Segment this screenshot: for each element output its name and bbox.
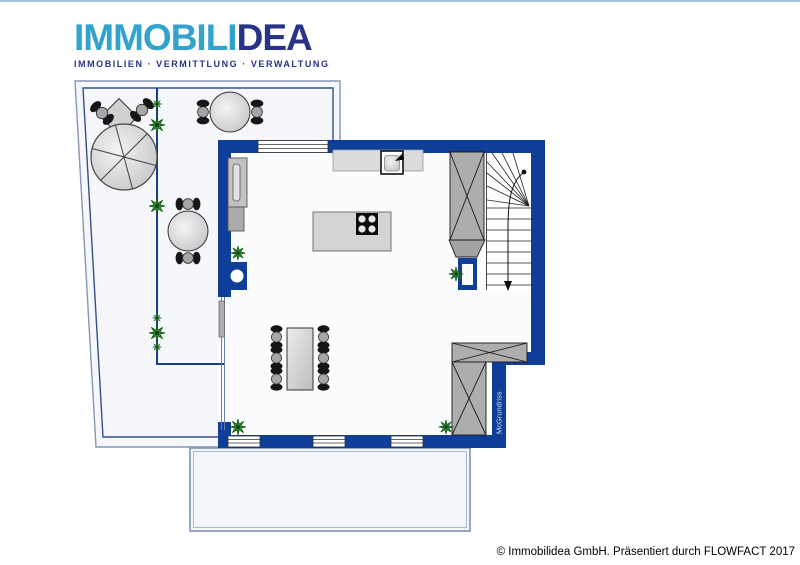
dining-set — [271, 325, 330, 390]
wall-column — [231, 270, 244, 283]
plant-icon — [149, 198, 165, 214]
round-table-icon — [168, 211, 208, 251]
wardrobe — [449, 152, 485, 257]
dining-chair-icon — [271, 346, 283, 369]
door-opening — [462, 264, 473, 285]
plant-icon — [152, 99, 162, 109]
garden-chair-icon — [176, 198, 201, 211]
dining-chair-icon — [318, 325, 330, 348]
cooktop-icon — [356, 213, 378, 235]
kitchen-counter — [333, 150, 423, 171]
kitchen-island — [313, 212, 391, 251]
balcony — [190, 448, 470, 531]
garden-chair-icon — [176, 252, 201, 265]
sliding-door-leaf — [219, 301, 225, 337]
window — [391, 436, 423, 447]
stair-walk-line-start — [522, 170, 527, 175]
plant-icon — [153, 314, 162, 323]
window — [313, 436, 345, 447]
round-table-icon — [210, 92, 250, 132]
copyright-text: © Immobilidea GmbH. Präsentiert durch FL… — [497, 546, 795, 558]
plant-icon — [449, 267, 463, 281]
floor-plan: McGrundriss — [0, 0, 800, 565]
plant-icon — [439, 420, 453, 434]
dining-table — [287, 328, 313, 390]
plant-icon — [230, 419, 246, 435]
plant-icon — [149, 117, 165, 133]
dining-chair-icon — [271, 367, 283, 390]
sink-icon — [381, 151, 404, 174]
tall-cabinet — [228, 158, 247, 231]
dining-chair-icon — [271, 325, 283, 348]
plant-icon — [149, 325, 165, 341]
window — [228, 436, 260, 447]
staircase — [487, 153, 532, 291]
window — [258, 141, 328, 153]
garden-chair-icon — [197, 100, 210, 125]
watermark-text: McGrundriss — [495, 391, 504, 434]
dining-chair-icon — [318, 346, 330, 369]
plant-icon — [153, 343, 162, 352]
garden-chair-icon — [251, 100, 264, 125]
plant-icon — [231, 246, 245, 260]
dining-chair-icon — [318, 367, 330, 390]
